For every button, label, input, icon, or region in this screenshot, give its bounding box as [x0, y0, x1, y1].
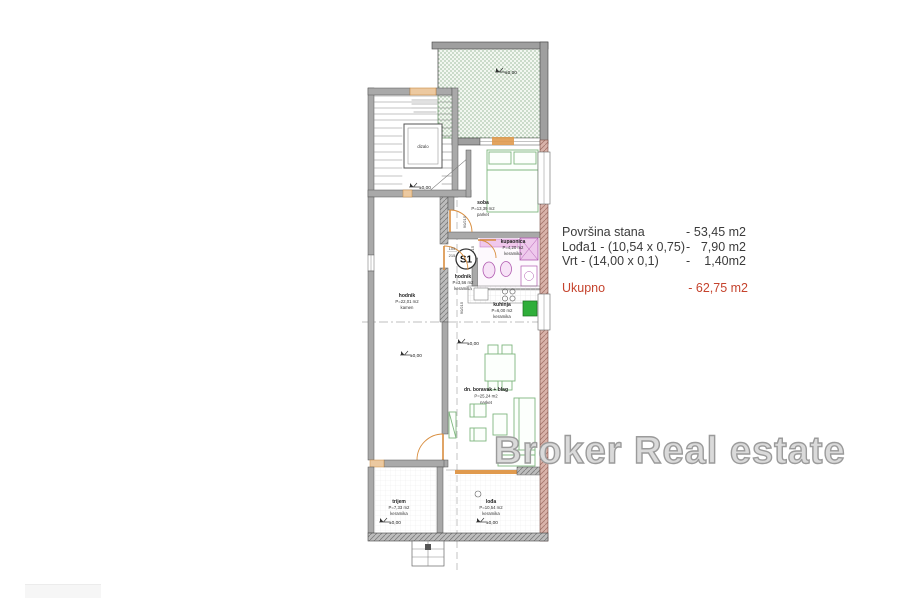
room-hodnik-floor: kamen	[401, 305, 415, 310]
entry-door-height: 215	[449, 253, 456, 258]
room-trijem-area: P=7,33 m2	[389, 505, 411, 510]
corridor-hodnik: hodnik P=22,01 m2 kamen ±0,00 ±0,00	[368, 183, 431, 460]
level-marker-terrace: ±0,00	[505, 70, 517, 76]
kitchen-sink	[474, 288, 488, 300]
flat-entry-door-arc	[417, 434, 443, 460]
floor-plan-svg: ±0,00 dizalo	[0, 0, 900, 600]
exterior-steps	[412, 541, 444, 566]
dnevni-door-dim: 90/215	[459, 301, 464, 314]
room-boravak-area: P=25,24 m2	[474, 394, 498, 399]
room-loda-floor: keramika	[482, 511, 500, 516]
level-marker-top: ±0,00	[419, 185, 431, 191]
dining-set	[485, 345, 515, 390]
soba-door-arc	[450, 210, 472, 232]
summary-row-dash: -	[686, 240, 690, 254]
summary-row-dash: -	[686, 225, 690, 239]
level-marker-trijem: ±0,00	[389, 520, 401, 526]
room-trijem: trijem P=7,33 m2 keramika ±0,00	[368, 460, 444, 533]
summary-row-label: Površina stana	[562, 225, 645, 239]
room-trijem-floor: keramika	[390, 511, 408, 516]
room-kuhinja: kuhinja P=6,00 m2 keramika	[468, 286, 540, 319]
terrace-door	[492, 137, 514, 145]
washer	[521, 266, 537, 286]
room-kuhinja-floor: keramika	[493, 314, 511, 319]
room-loda-area: P=10,54 m2	[479, 505, 503, 510]
room-kupaonica-area: P=4,20 m2	[503, 245, 525, 250]
room-hodnik-area: P=22,01 m2	[395, 299, 419, 304]
room-hodnik-stan: hodnik P=3,56 m2 keramika S1 105 215 90/…	[444, 246, 476, 314]
broker-watermark: Broker Real estate	[494, 430, 846, 473]
area-summary: Površina stana - 53,45 m2 Lođa1 - (10,54…	[562, 225, 748, 295]
room-boravak-name: dn. boravak + blag	[464, 387, 508, 393]
summary-row-label: Vrt - (14,00 x 0,1)	[562, 254, 659, 268]
entry-door-width: 105	[449, 246, 456, 251]
summary-total-label: Ukupno	[562, 281, 605, 295]
stairwell-door	[410, 88, 436, 95]
soba-door-dim: 90/215	[462, 215, 467, 228]
summary-row-dash: -	[686, 254, 690, 268]
kitchen-appliance	[523, 301, 537, 316]
bed	[487, 150, 538, 212]
sink	[483, 262, 495, 278]
room-kuhinja-area: P=6,00 m2	[492, 308, 514, 313]
bottom-left-panel	[25, 584, 101, 598]
toilet	[501, 262, 512, 277]
summary-row-value: 53,45 m2	[694, 225, 746, 239]
room-loda: lođa P=10,54 m2 keramika ±0,00	[446, 467, 540, 533]
room-soba-floor: parket	[477, 212, 490, 217]
summary-total-value: - 62,75 m2	[688, 281, 748, 295]
level-marker-corridor: ±0,00	[410, 353, 422, 359]
elevator-label: dizalo	[417, 144, 429, 149]
summary-row-label: Lođa1 - (10,54 x 0,75)	[562, 240, 685, 254]
room-kupaonica: kupaonica P=4,20 m2 keramika 60/215	[470, 238, 540, 288]
stairwell: dizalo	[368, 88, 471, 197]
summary-row-value: 1,40m2	[704, 254, 746, 268]
level-marker-loda: ±0,00	[486, 520, 498, 526]
room-hodnik-stan-area: P=3,56 m2	[453, 280, 475, 285]
level-marker-living: ±0,00	[467, 341, 479, 347]
room-soba-area: P=13,39 m2	[471, 206, 495, 211]
floorplan-page: ±0,00 dizalo	[0, 0, 900, 600]
room-kupaonica-floor: keramika	[504, 251, 522, 256]
summary-row-value: 7,90 m2	[701, 240, 746, 254]
